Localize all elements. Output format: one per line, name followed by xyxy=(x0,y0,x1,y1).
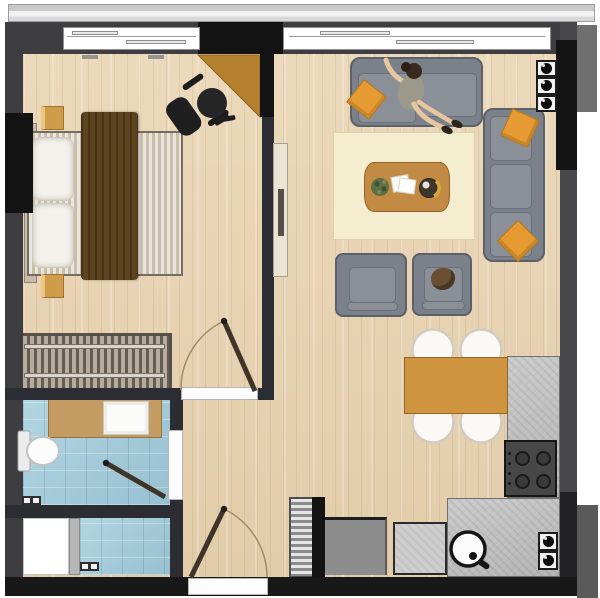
laundry-appliance xyxy=(23,518,69,575)
dining-table xyxy=(404,357,508,414)
wall-bedroom-corner xyxy=(260,54,274,117)
wall-right-bottom-segment xyxy=(560,492,577,578)
coffee-table xyxy=(364,162,450,212)
stove-burner xyxy=(515,451,530,466)
shaft-cell xyxy=(538,551,558,570)
floor-vent-icon xyxy=(22,496,41,505)
stove xyxy=(504,440,557,497)
wall-bathroom-laundry xyxy=(5,505,170,518)
curtain-tick xyxy=(82,55,98,59)
floor-vent-icon xyxy=(80,562,99,571)
pipe-icon xyxy=(541,63,552,74)
tv-icon xyxy=(278,189,284,236)
wall-right-black-segment xyxy=(556,40,577,170)
entrance-threshold xyxy=(188,578,268,595)
bedroom-window xyxy=(63,27,200,50)
wall-door-post xyxy=(256,388,274,400)
nightstand-top xyxy=(41,106,64,130)
window-frame-line xyxy=(289,36,544,37)
armchair-front xyxy=(347,302,398,311)
sofa-cushion xyxy=(419,73,477,117)
pipe-icon xyxy=(541,80,552,91)
pipe-icon xyxy=(543,555,554,566)
stove-knob xyxy=(508,462,511,465)
sofa-cushion xyxy=(490,164,532,209)
wall-left-black-segment xyxy=(5,113,33,213)
stove-burner xyxy=(536,474,551,489)
tv-sideboard xyxy=(273,143,288,277)
floor-plan xyxy=(0,0,600,598)
stove-burner xyxy=(536,451,551,466)
bed-blanket xyxy=(81,112,138,280)
bedroom-door-threshold xyxy=(181,387,258,400)
wardrobe-rail xyxy=(24,373,164,378)
living-window xyxy=(283,27,551,50)
stove-knob xyxy=(508,452,511,455)
nightstand-bottom xyxy=(41,274,64,298)
window-pane-handle xyxy=(320,31,390,35)
armchair-right xyxy=(412,253,472,316)
balcony-ledge xyxy=(8,4,595,22)
laundry-partition xyxy=(69,518,80,575)
window-frame-line xyxy=(67,36,197,37)
stove-burner xyxy=(515,474,530,489)
shaft-cell xyxy=(538,532,558,551)
pipe-icon xyxy=(543,536,554,547)
shaft-cell xyxy=(536,95,557,112)
stove-knob xyxy=(508,472,511,475)
service-shaft-top xyxy=(536,60,557,112)
service-shaft-bottom xyxy=(538,532,558,570)
wall-between-windows xyxy=(198,22,283,54)
wall-bedroom-bathroom xyxy=(5,388,181,400)
armchair-left xyxy=(335,253,407,317)
shaft-cell xyxy=(536,60,557,77)
pipe-icon xyxy=(541,98,552,109)
window-pane-handle xyxy=(72,31,118,35)
armchair-front xyxy=(422,301,465,310)
wardrobe-rail xyxy=(24,344,164,349)
exterior-wall-bottom-right xyxy=(577,505,598,598)
wall-left xyxy=(5,22,23,578)
stove-knob xyxy=(508,482,511,485)
window-pane-handle xyxy=(396,40,474,44)
bed-pillow xyxy=(32,137,74,201)
wall-stub-entry xyxy=(312,497,325,578)
bathroom-door-opening xyxy=(168,430,183,500)
wardrobe xyxy=(17,333,172,391)
shaft-cell xyxy=(536,77,557,94)
appliance-cabinet xyxy=(393,522,447,575)
window-pane-handle xyxy=(126,40,186,44)
wall-bottom xyxy=(5,577,577,596)
armchair-seat xyxy=(349,267,396,303)
entry-cabinet xyxy=(325,517,387,575)
curtain-tick xyxy=(148,55,164,59)
entry-radiator xyxy=(289,497,314,578)
washbasin xyxy=(103,401,149,435)
bed-pillow xyxy=(32,203,74,268)
